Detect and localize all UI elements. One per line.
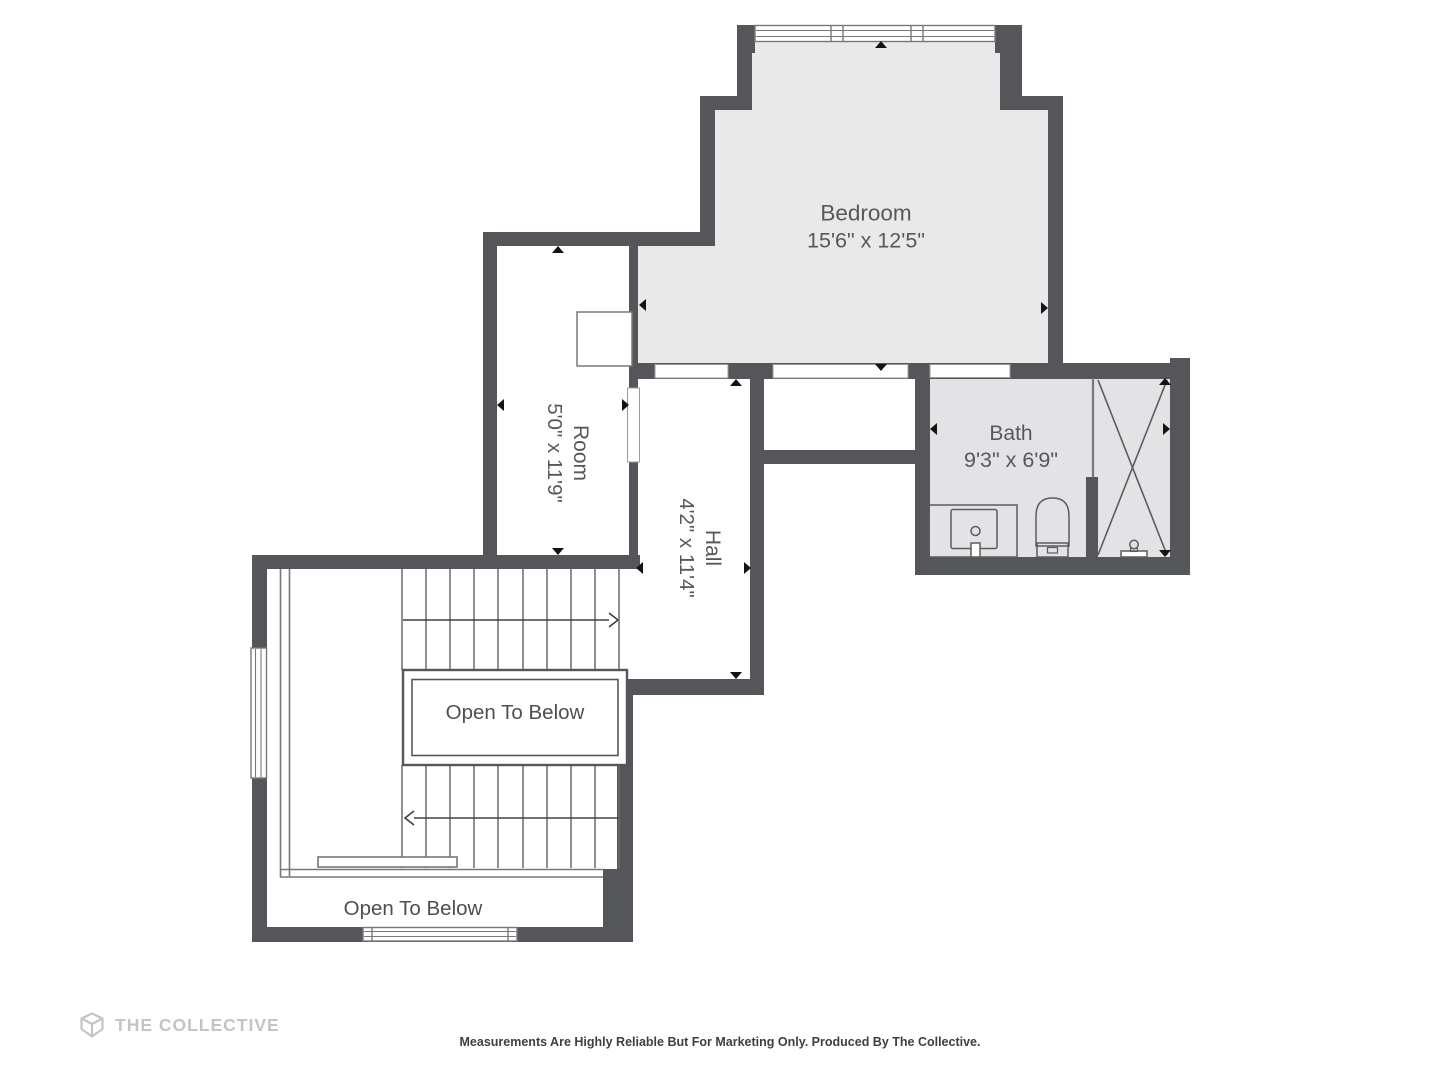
wall-segment	[483, 232, 715, 246]
wall-segment	[603, 869, 633, 942]
floor-plan-canvas: Bedroom 15'6" x 12'5" Room 5'0" x 11'9" …	[0, 0, 1440, 1080]
wall-segment	[1170, 358, 1190, 575]
stair-direction-arrow-icon	[403, 613, 618, 627]
bedroom-floor	[752, 40, 1000, 112]
doorway-bedroom-hall	[655, 365, 728, 379]
wall-segment	[915, 557, 1190, 575]
wall-segment	[1048, 96, 1063, 379]
room-dimensions: 15'6" x 12'5"	[807, 228, 925, 255]
disclaimer-text: Measurements Are Highly Reliable But For…	[0, 1035, 1440, 1049]
wall-segment	[629, 679, 764, 695]
window-icon	[363, 928, 517, 942]
room-name: Room	[567, 403, 593, 503]
wall-segment	[252, 555, 640, 569]
wall-segment	[483, 232, 497, 569]
window-icon	[251, 648, 267, 778]
stair-treads-lower-flight	[402, 765, 619, 868]
measure-arrow-icon	[497, 399, 504, 411]
wall-segment	[750, 450, 930, 464]
measure-arrow-icon	[744, 562, 751, 574]
stair-direction-arrow-icon	[405, 811, 619, 825]
stair-railing	[318, 857, 457, 867]
room-name: Bath	[964, 420, 1058, 447]
room-dimensions: 9'3" x 6'9"	[964, 447, 1058, 474]
wall-segment	[750, 363, 764, 695]
room-name: Bedroom	[807, 200, 925, 228]
open-to-below-label: Open To Below	[446, 701, 585, 725]
doorway-bath	[930, 365, 1010, 378]
brand-logo-text: THE COLLECTIVE	[115, 1015, 280, 1036]
room-label: Room 5'0" x 11'9"	[541, 403, 593, 503]
hall-label: Hall 4'2" x 11'4"	[673, 498, 725, 598]
room-name: Hall	[699, 498, 725, 598]
open-to-below-label: Open To Below	[344, 897, 483, 921]
wall-segment	[915, 363, 930, 575]
measure-arrow-icon	[552, 246, 564, 253]
bedroom-label: Bedroom 15'6" x 12'5"	[807, 200, 925, 255]
closet-opening	[773, 365, 908, 379]
wall-segment	[700, 96, 715, 246]
window-icon	[755, 26, 995, 42]
doorway-room	[628, 388, 640, 462]
bath-label: Bath 9'3" x 6'9"	[964, 420, 1058, 474]
room-dimensions: 4'2" x 11'4"	[673, 498, 699, 598]
measure-arrow-icon	[730, 379, 742, 386]
measure-arrow-icon	[552, 548, 564, 555]
room-closet-outline	[577, 312, 632, 366]
bedroom-floor	[638, 245, 1048, 366]
wall-segment	[1086, 477, 1098, 558]
room-dimensions: 5'0" x 11'9"	[541, 403, 567, 503]
measure-arrow-icon	[730, 672, 742, 679]
